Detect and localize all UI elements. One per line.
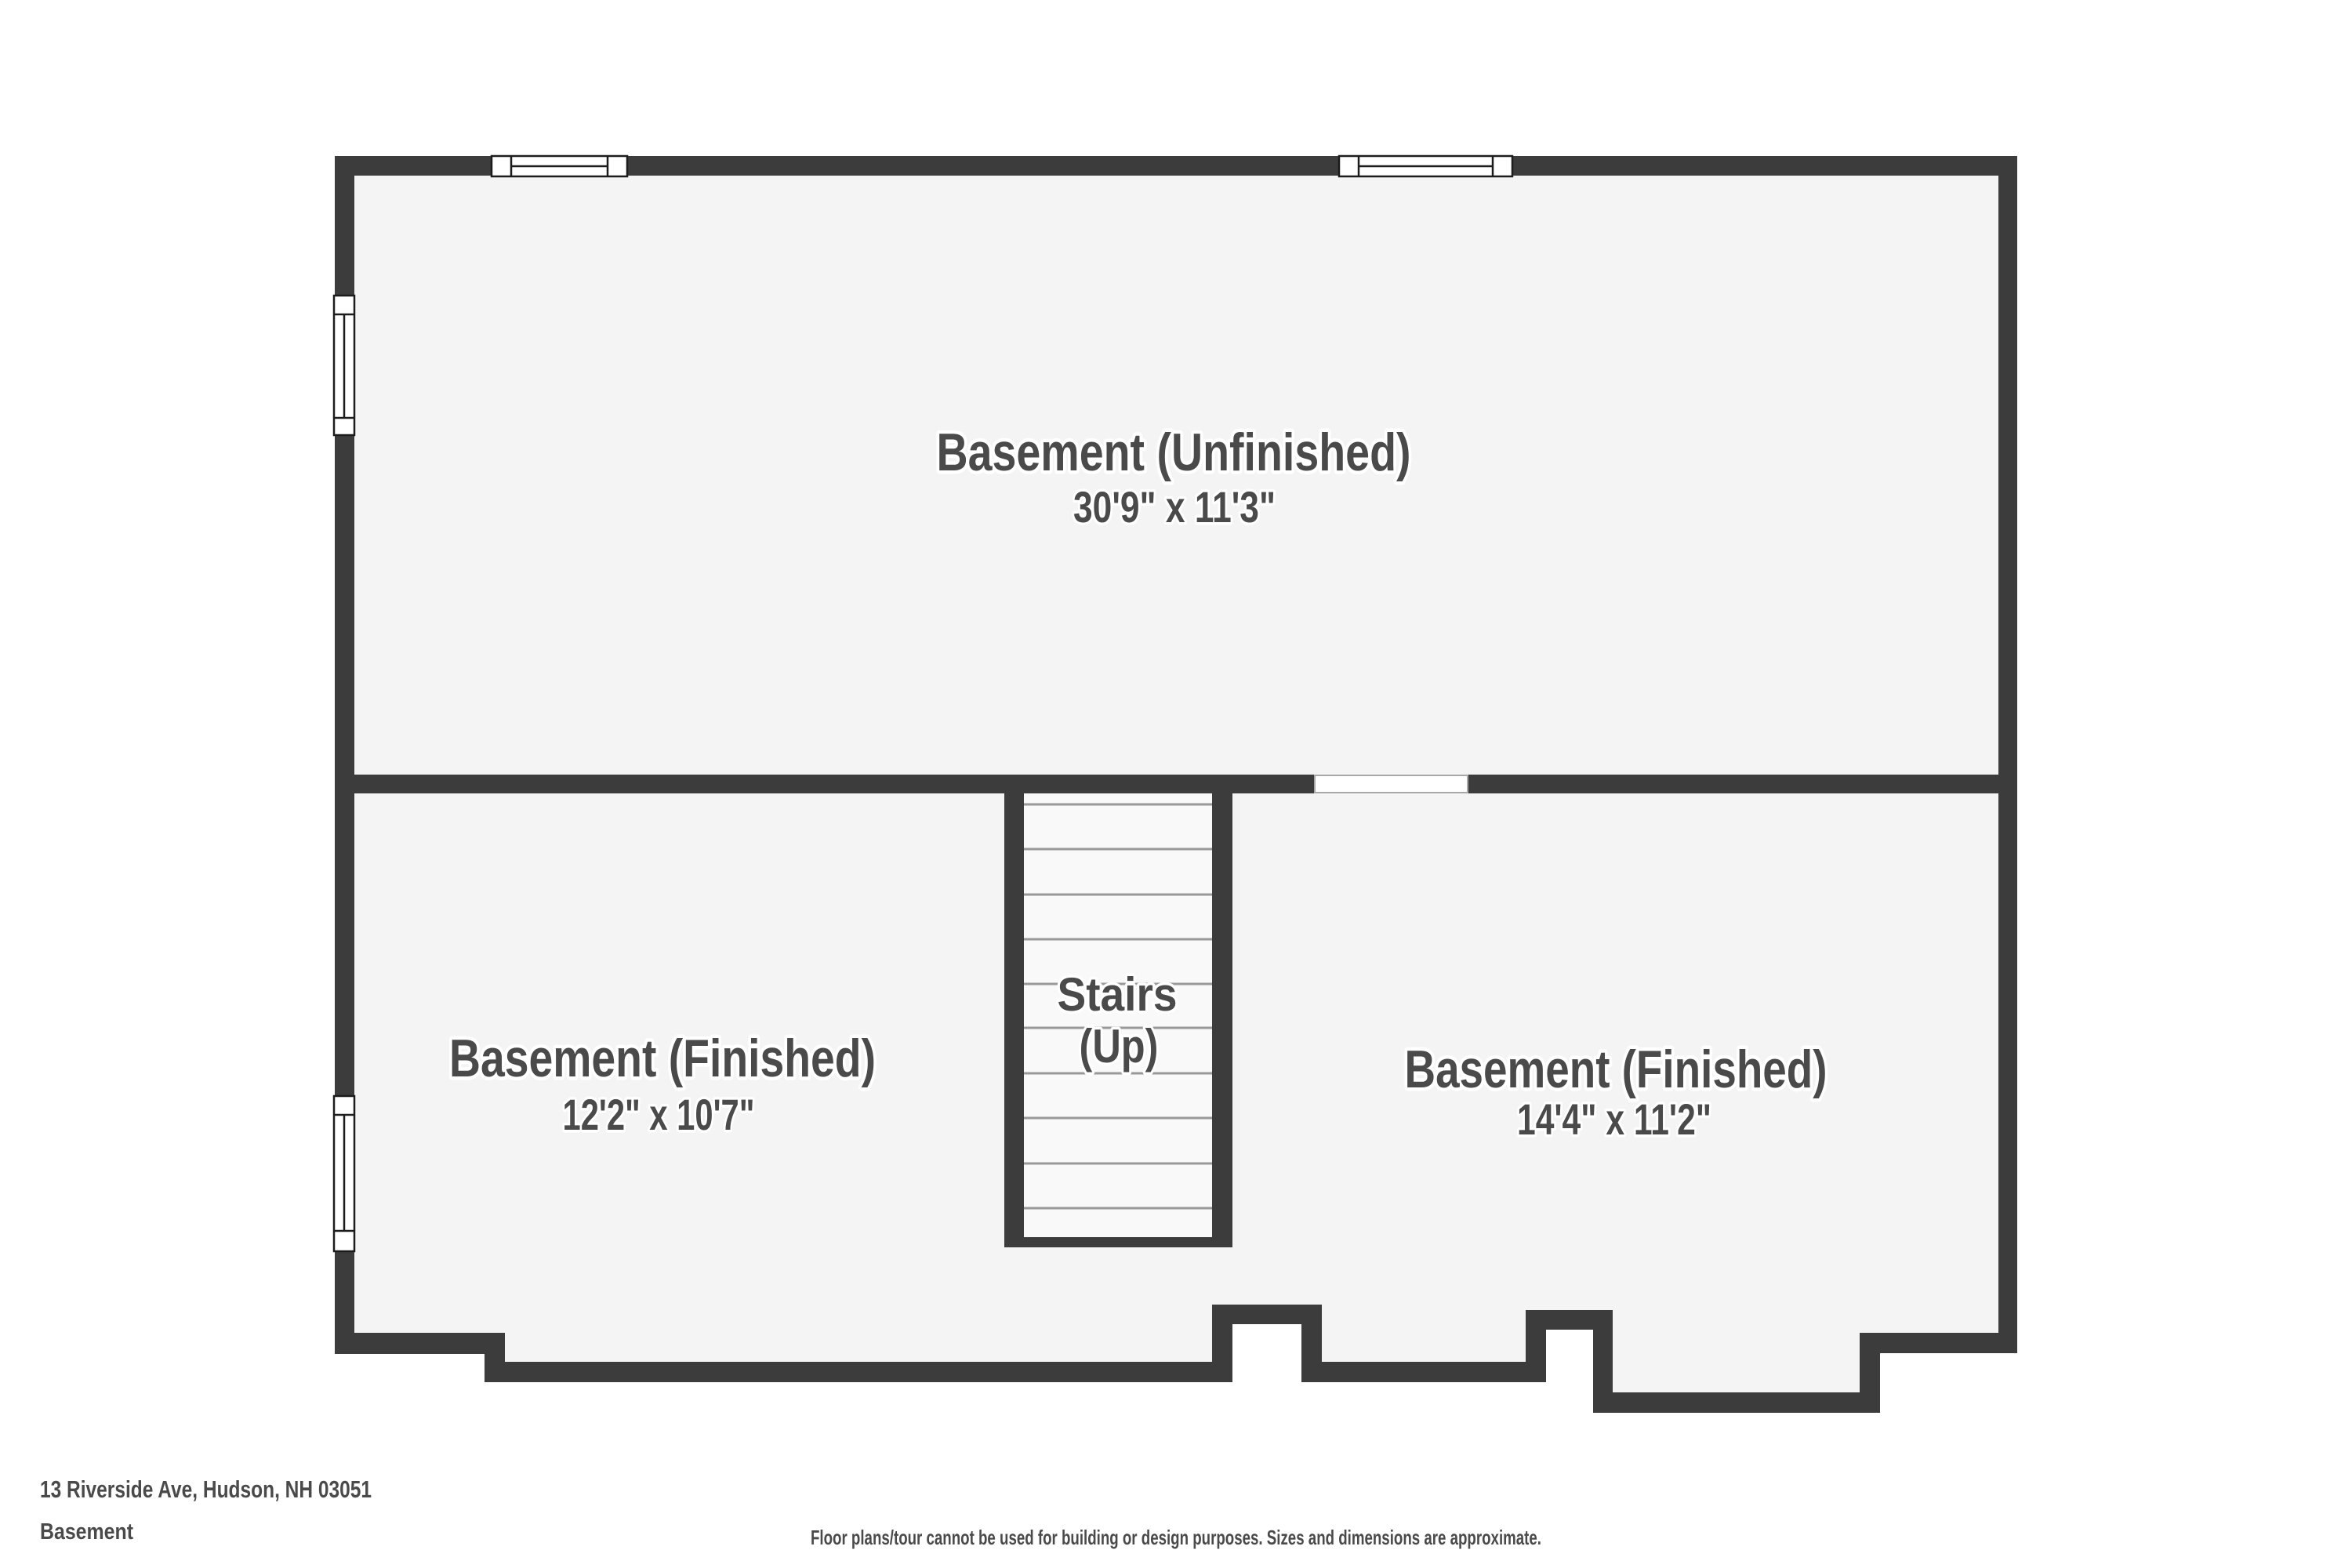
svg-text:12'2" x 10'7": 12'2" x 10'7" <box>563 1090 755 1139</box>
svg-text:Stairs: Stairs <box>1058 968 1178 1021</box>
svg-text:(Up): (Up) <box>1080 1020 1159 1073</box>
svg-text:Basement: Basement <box>40 1519 133 1544</box>
svg-text:30'9" x 11'3": 30'9" x 11'3" <box>1073 482 1276 532</box>
svg-text:14'4" x 11'2": 14'4" x 11'2" <box>1517 1094 1711 1144</box>
svg-text:Basement (Finished): Basement (Finished) <box>449 1029 876 1088</box>
svg-text:Basement (Finished): Basement (Finished) <box>1405 1040 1828 1099</box>
svg-text:Floor plans/tour cannot be use: Floor plans/tour cannot be used for buil… <box>811 1526 1541 1549</box>
svg-text:13 Riverside Ave, Hudson, NH 0: 13 Riverside Ave, Hudson, NH 03051 <box>40 1475 372 1503</box>
svg-text:Basement (Unfinished): Basement (Unfinished) <box>937 423 1411 482</box>
